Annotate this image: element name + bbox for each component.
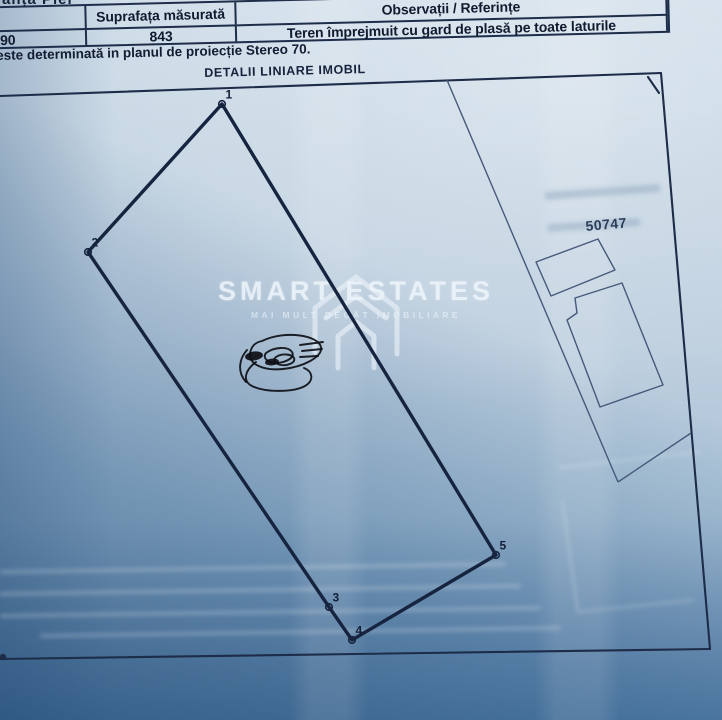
plan-title: DETALII LINIARE IMOBIL [195, 62, 375, 80]
value-suprafata: 843 [87, 24, 237, 45]
document-text-layer: anța Pier lastral Suprafața măsurată Obs… [0, 0, 722, 720]
cadastral-table: lastral Suprafața măsurată Observații / … [0, 0, 670, 51]
cadastral-document-photo: SMART ESTATES MAI MULT DECÂT IMOBILIARE … [0, 0, 722, 720]
